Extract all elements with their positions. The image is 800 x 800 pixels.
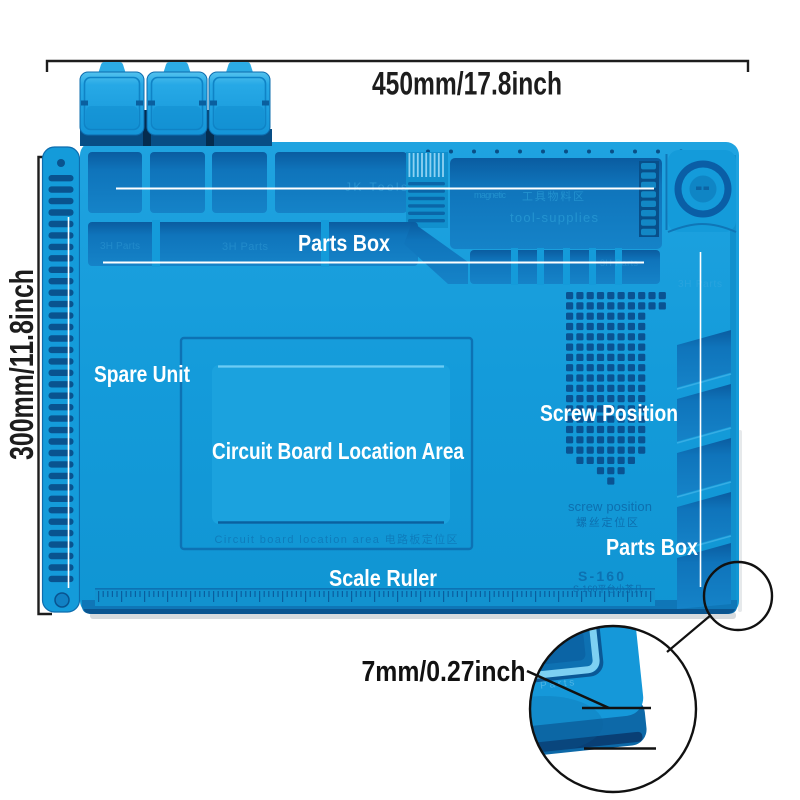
svg-text:Circuit board location area 电: Circuit board location area 电路板定位区	[215, 532, 458, 546]
svg-text:screw position: screw position	[568, 499, 652, 514]
svg-text:Parts Box: Parts Box	[298, 230, 390, 256]
svg-text:300mm/11.8inch: 300mm/11.8inch	[3, 269, 40, 460]
svg-text:tool-supplies: tool-supplies	[510, 210, 599, 225]
svg-text:Parts Box: Parts Box	[606, 534, 698, 560]
svg-text:450mm/17.8inch: 450mm/17.8inch	[372, 66, 562, 102]
svg-text:3H Parts: 3H Parts	[100, 241, 140, 252]
svg-text:Spare Unit: Spare Unit	[94, 361, 190, 387]
svg-text:Screw Position: Screw Position	[540, 400, 678, 426]
svg-text:3H Parts: 3H Parts	[222, 241, 269, 253]
svg-text:magnetic: magnetic	[474, 190, 507, 200]
svg-text:7mm/0.27inch: 7mm/0.27inch	[362, 656, 526, 688]
svg-text:Circuit Board Location Area: Circuit Board Location Area	[212, 438, 464, 464]
svg-text:工具物料区: 工具物料区	[522, 189, 584, 203]
svg-text:Scale Ruler: Scale Ruler	[329, 565, 437, 591]
svg-text:S-160: S-160	[578, 568, 624, 584]
svg-text:螺丝定位区: 螺丝定位区	[576, 515, 638, 529]
svg-text:S-160平台小茶几: S-160平台小茶几	[573, 583, 643, 594]
